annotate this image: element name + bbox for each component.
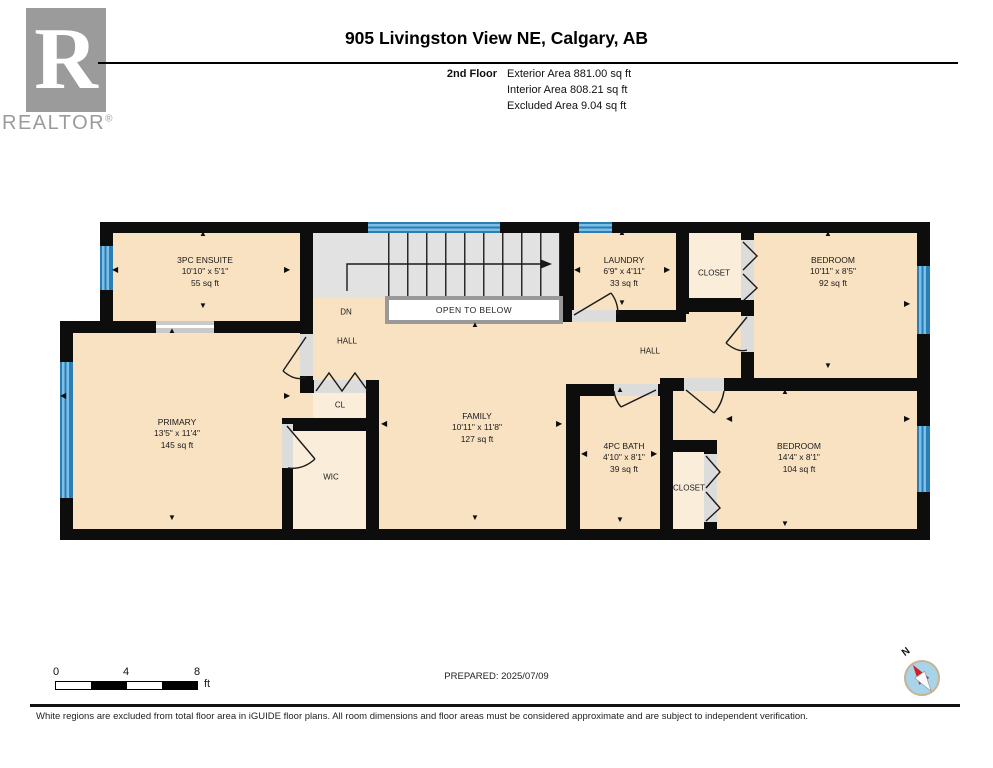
wall — [100, 222, 930, 233]
scale-segment — [127, 682, 162, 689]
dimension-arrow: ▶ — [904, 415, 910, 423]
dimension-arrow: ▲ — [616, 386, 624, 394]
dimension-arrow: ▲ — [824, 230, 832, 238]
dimension-arrow: ▼ — [824, 362, 832, 370]
dimension-arrow: ◀ — [726, 415, 732, 423]
disclaimer-text: White regions are excluded from total fl… — [36, 711, 956, 722]
bedroom-bottom-window — [917, 426, 930, 492]
room-label-bedroom-top: BEDROOM10'11" x 8'5"92 sq ft — [810, 255, 856, 289]
header-divider — [98, 62, 958, 64]
dimension-arrow: ▼ — [471, 514, 479, 522]
room-label-family: FAMILY10'11" x 11'8"127 sq ft — [452, 411, 502, 445]
dimension-arrow: ◀ — [574, 266, 580, 274]
room-label-ensuite: 3PC ENSUITE10'10" x 5'1"55 sq ft — [177, 255, 233, 289]
compass-north-label: N — [900, 646, 912, 659]
room-label-primary: PRIMARY13'5" x 11'4"145 sq ft — [154, 417, 200, 451]
wall — [676, 298, 754, 312]
scale-segment — [162, 682, 197, 689]
scale-segment — [91, 682, 126, 689]
dimension-arrow: ▶ — [284, 392, 290, 400]
scale-bar — [55, 681, 198, 690]
stair-treads — [388, 233, 560, 298]
stair-window — [368, 222, 500, 233]
primary-door-opening — [300, 334, 313, 376]
cl-bifold-strip — [314, 380, 366, 393]
dimension-arrow: ◀ — [112, 266, 118, 274]
prepared-date: PREPARED: 2025/07/09 — [0, 671, 993, 682]
wall — [282, 418, 379, 431]
footer-divider — [30, 704, 960, 707]
laundry-door-opening — [572, 310, 616, 322]
dimension-arrow: ▶ — [556, 420, 562, 428]
dimension-arrow: ▶ — [904, 300, 910, 308]
dimension-arrow: ▲ — [168, 327, 176, 335]
dimension-arrow: ▼ — [168, 514, 176, 522]
floor-label: 2nd Floor — [375, 68, 497, 80]
dimension-arrow: ▼ — [781, 520, 789, 528]
label-dn: DN — [340, 308, 352, 317]
closet-top-floor — [689, 233, 741, 302]
dimension-arrow: ▼ — [616, 516, 624, 524]
wall — [60, 529, 930, 540]
label-hall-right: HALL — [640, 347, 660, 356]
dimension-arrow: ▲ — [199, 230, 207, 238]
room-label-laundry: LAUNDRY6'9" x 4'11"33 sq ft — [603, 255, 644, 289]
floorplan-page: R REALTOR® 905 Livingston View NE, Calga… — [0, 0, 993, 768]
interior-area: Interior Area 808.21 sq ft — [507, 84, 627, 96]
dimension-arrow: ▲ — [781, 388, 789, 396]
open-to-below-label: OPEN TO BELOW — [436, 305, 512, 315]
wic-door-opening — [282, 424, 293, 468]
closet-bottom-bifold-strip — [704, 454, 717, 522]
bedroom-top-door-opening — [741, 316, 754, 352]
dimension-arrow: ▲ — [618, 229, 626, 237]
laundry-window — [579, 222, 612, 233]
dimension-arrow: ▼ — [618, 299, 626, 307]
dimension-arrow: ◀ — [581, 450, 587, 458]
room-label-wic: WIC — [323, 473, 339, 482]
stair-landing — [307, 233, 392, 298]
realtor-wordmark: REALTOR® — [2, 112, 114, 135]
dimension-arrow: ▶ — [651, 450, 657, 458]
dimension-arrow: ▶ — [284, 266, 290, 274]
realtor-brand-text: REALTOR — [2, 112, 105, 134]
wall — [741, 222, 754, 242]
compass: N — [892, 640, 954, 704]
closet-top-bifold-strip — [741, 240, 754, 300]
bedroom-top-window — [917, 266, 930, 334]
dimension-arrow: ◀ — [381, 420, 387, 428]
label-hall-left: HALL — [337, 337, 357, 346]
wall — [300, 222, 313, 333]
room-label-closet-bottom: CLOSET — [673, 484, 705, 493]
dimension-arrow: ◀ — [744, 300, 750, 308]
ensuite-pocket-door — [156, 321, 214, 333]
wall — [566, 384, 580, 529]
room-label-bath: 4PC BATH4'10" x 8'1"39 sq ft — [603, 441, 645, 475]
dimension-arrow: ▲ — [471, 321, 479, 329]
primary-window — [60, 362, 73, 498]
dimension-arrow: ◀ — [60, 392, 66, 400]
registered-symbol: ® — [105, 113, 114, 124]
room-label-closet-top: CLOSET — [698, 269, 730, 278]
room-label-cl: CL — [335, 401, 345, 410]
dimension-arrow: ▼ — [199, 302, 207, 310]
excluded-area: Excluded Area 9.04 sq ft — [507, 100, 626, 112]
room-label-bedroom-bottom: BEDROOM14'4" x 8'1"104 sq ft — [777, 441, 821, 475]
wall — [366, 380, 379, 529]
wall — [660, 384, 673, 529]
realtor-logo: R — [26, 8, 106, 112]
exterior-area: Exterior Area 881.00 sq ft — [507, 68, 631, 80]
dimension-arrow: ▶ — [664, 266, 670, 274]
page-title: 905 Livingston View NE, Calgary, AB — [0, 28, 993, 49]
bedroom-bottom-door-opening — [684, 378, 724, 391]
scale-segment — [56, 682, 91, 689]
